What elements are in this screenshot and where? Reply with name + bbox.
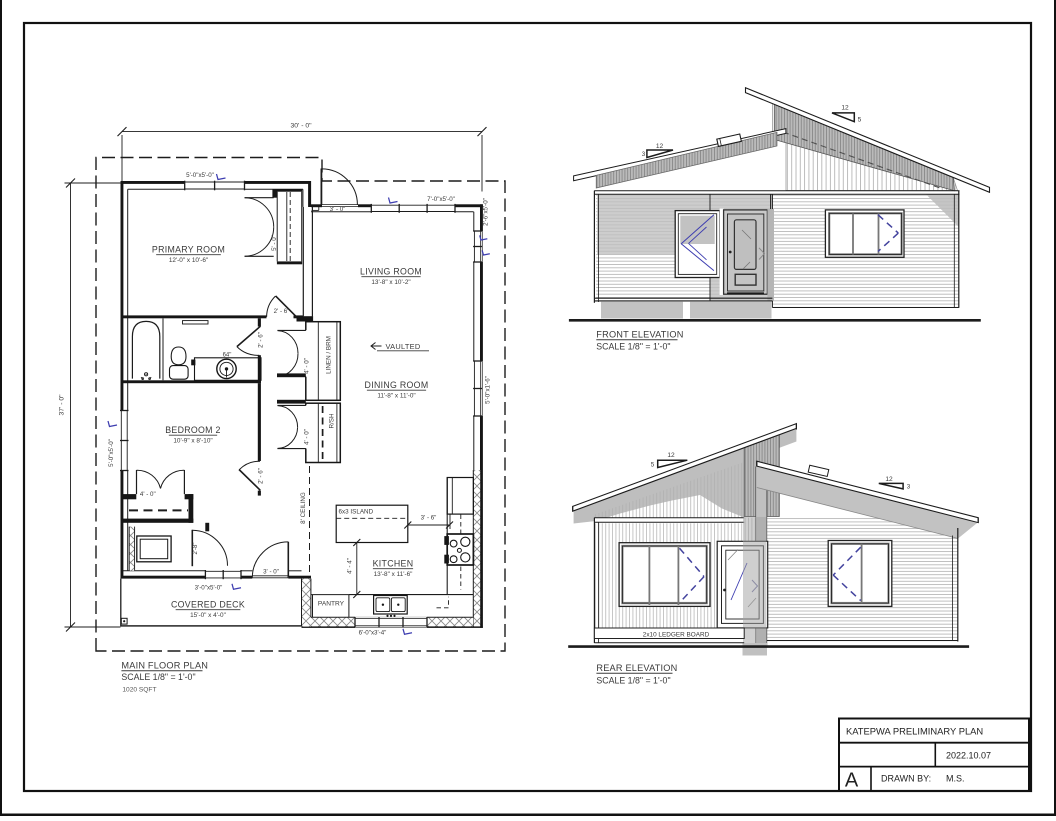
svg-text:M.S.: M.S.: [946, 774, 965, 784]
svg-text:37' - 0": 37' - 0": [59, 394, 66, 416]
svg-text:12'-0" x 10'-6": 12'-0" x 10'-6": [169, 257, 208, 264]
svg-text:5'-0"x5'-0": 5'-0"x5'-0": [186, 172, 214, 179]
svg-text:REAR ELEVATION: REAR ELEVATION: [596, 663, 677, 673]
svg-text:3: 3: [907, 484, 911, 491]
svg-text:11'-8" x 11'-0": 11'-8" x 11'-0": [377, 392, 415, 399]
svg-text:PANTRY: PANTRY: [318, 600, 345, 607]
svg-text:10'-9" x 8'-10": 10'-9" x 8'-10": [173, 437, 212, 444]
svg-text:SCALE 1/8" = 1'-0": SCALE 1/8" = 1'-0": [596, 675, 670, 685]
svg-text:2'-8": 2'-8": [193, 543, 199, 555]
svg-text:2'-6"x5'-0": 2'-6"x5'-0": [483, 198, 490, 226]
svg-text:VAULTED: VAULTED: [385, 342, 420, 351]
svg-text:R/SH: R/SH: [329, 413, 336, 428]
svg-text:4' - 4": 4' - 4": [347, 558, 354, 574]
svg-text:5'-0"x5'-0": 5'-0"x5'-0": [108, 439, 115, 467]
svg-text:LINEN / BRM: LINEN / BRM: [325, 336, 332, 374]
svg-text:A: A: [845, 770, 859, 792]
svg-text:5' - 0": 5' - 0": [271, 235, 278, 251]
svg-text:DRAWN BY:: DRAWN BY:: [881, 774, 931, 784]
svg-text:30' - 0": 30' - 0": [290, 123, 312, 130]
svg-text:7'-0"x5'-0": 7'-0"x5'-0": [427, 196, 455, 203]
svg-text:1020 SQFT: 1020 SQFT: [122, 686, 156, 693]
svg-text:4' - 0": 4' - 0": [140, 491, 156, 498]
svg-text:COVERED DECK: COVERED DECK: [171, 600, 245, 610]
svg-text:2022.10.07: 2022.10.07: [946, 750, 991, 760]
svg-text:2' - 6": 2' - 6": [258, 332, 265, 348]
svg-text:2' - 6": 2' - 6": [274, 308, 290, 315]
svg-text:8' CEILING: 8' CEILING: [300, 492, 307, 524]
svg-text:2x10 LEDGER BOARD: 2x10 LEDGER BOARD: [643, 632, 710, 639]
svg-text:3' - 0": 3' - 0": [263, 569, 279, 576]
svg-text:LIVING ROOM: LIVING ROOM: [360, 267, 422, 277]
svg-text:KITCHEN: KITCHEN: [373, 559, 414, 569]
svg-text:5: 5: [858, 116, 862, 123]
svg-text:3' - 0": 3' - 0": [330, 206, 346, 213]
svg-text:13'-8" x 11'-6": 13'-8" x 11'-6": [374, 571, 413, 578]
svg-text:MAIN FLOOR PLAN: MAIN FLOOR PLAN: [121, 660, 208, 670]
svg-text:15'-0" x 4'-0": 15'-0" x 4'-0": [190, 612, 226, 619]
svg-text:12: 12: [885, 476, 893, 483]
svg-text:3' - 6": 3' - 6": [421, 515, 437, 522]
svg-text:6x3 ISLAND: 6x3 ISLAND: [339, 509, 374, 516]
svg-text:64": 64": [223, 352, 232, 358]
svg-text:12: 12: [841, 105, 849, 112]
svg-text:12: 12: [667, 452, 675, 459]
svg-text:FRONT ELEVATION: FRONT ELEVATION: [596, 329, 683, 339]
svg-text:12: 12: [656, 143, 664, 150]
svg-text:4' - 0": 4' - 0": [304, 429, 311, 445]
svg-text:5: 5: [651, 462, 655, 469]
svg-text:BEDROOM 2: BEDROOM 2: [165, 425, 221, 435]
svg-text:5'-0"x1'-6": 5'-0"x1'-6": [485, 376, 492, 404]
svg-text:KATEPWA PRELIMINARY PLAN: KATEPWA PRELIMINARY PLAN: [846, 725, 983, 736]
svg-text:3'-0"x5'-0": 3'-0"x5'-0": [195, 584, 223, 591]
svg-text:13'-8" x 10'-2": 13'-8" x 10'-2": [371, 279, 410, 286]
svg-text:4' - 0": 4' - 0": [304, 358, 311, 374]
svg-text:2' - 6": 2' - 6": [258, 468, 265, 484]
svg-text:SCALE 1/8" = 1'-0": SCALE 1/8" = 1'-0": [596, 342, 670, 352]
svg-text:SCALE 1/8" = 1'-0": SCALE 1/8" = 1'-0": [121, 672, 195, 682]
svg-text:DINING ROOM: DINING ROOM: [365, 380, 429, 390]
svg-text:PRIMARY ROOM: PRIMARY ROOM: [152, 245, 225, 255]
svg-text:3: 3: [642, 151, 646, 158]
svg-text:6'-0"x3'-4": 6'-0"x3'-4": [359, 629, 387, 636]
